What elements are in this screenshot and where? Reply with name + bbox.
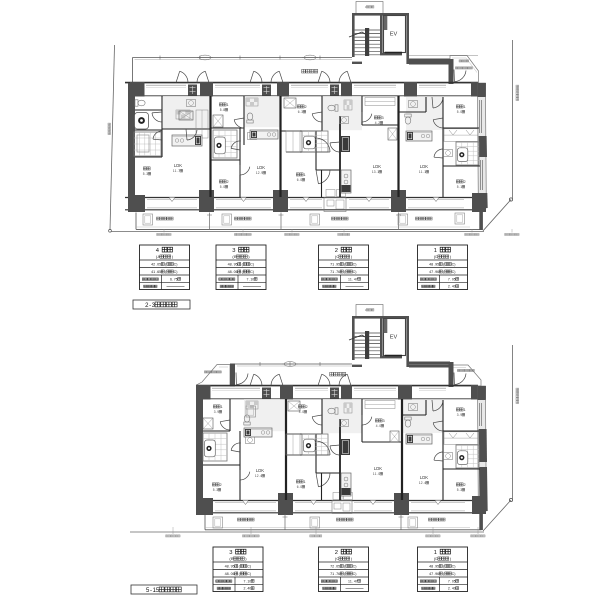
svg-text:): ) (454, 270, 455, 274)
svg-text:6: 6 (338, 572, 340, 576)
svg-text:3: 3 (232, 248, 235, 254)
svg-text:): ) (355, 565, 356, 569)
svg-text:6: 6 (437, 572, 439, 576)
svg-text:): ) (253, 263, 254, 267)
svg-text:LDK: LDK (374, 466, 382, 471)
svg-text:5: 5 (159, 270, 161, 274)
svg-text:6: 6 (233, 572, 235, 576)
svg-text:): ) (250, 565, 251, 569)
svg-text:): ) (355, 263, 356, 267)
svg-text:3: 3 (382, 116, 384, 120)
svg-text:5: 5 (159, 263, 161, 267)
svg-text:5: 5 (437, 565, 439, 569)
svg-text:): ) (355, 270, 356, 274)
svg-text:): ) (355, 572, 356, 576)
svg-text:3: 3 (383, 419, 385, 423)
svg-text:2: 2 (464, 483, 466, 487)
svg-text:2: 2 (335, 550, 338, 556)
svg-text:LDK: LDK (420, 475, 428, 480)
svg-text:0: 0 (249, 587, 251, 591)
svg-text:LDK: LDK (256, 468, 264, 473)
svg-text:): ) (454, 565, 455, 569)
svg-text:7: 7 (356, 579, 358, 583)
svg-text:0: 0 (252, 277, 254, 281)
svg-text:0: 0 (249, 579, 251, 583)
svg-text:5: 5 (454, 579, 456, 583)
svg-text:): ) (250, 572, 251, 576)
svg-text:LDK: LDK (373, 164, 381, 169)
svg-text:1: 1 (434, 248, 437, 254)
svg-text:1: 1 (304, 173, 306, 177)
svg-text:1: 1 (304, 480, 306, 484)
svg-text:1: 1 (464, 408, 466, 412)
svg-text:EV: EV (390, 335, 398, 341)
svg-text:6: 6 (236, 270, 238, 274)
svg-text:2: 2 (464, 180, 466, 184)
svg-text:0: 0 (454, 587, 456, 591)
svg-text:1: 1 (227, 103, 229, 107)
svg-text:2: 2 (227, 180, 229, 184)
svg-text:5: 5 (437, 263, 439, 267)
svg-text:): ) (176, 263, 177, 267)
svg-text:): ) (176, 270, 177, 274)
svg-text:5: 5 (233, 565, 235, 569)
svg-text:LDK: LDK (174, 163, 182, 168)
svg-text:1: 1 (464, 105, 466, 109)
svg-text:5: 5 (338, 263, 340, 267)
svg-text:5: 5 (338, 565, 340, 569)
svg-text:LDK: LDK (257, 165, 265, 170)
svg-text:2: 2 (306, 405, 308, 409)
svg-text:7: 7 (356, 277, 358, 281)
svg-text:): ) (454, 263, 455, 267)
svg-text:): ) (253, 270, 254, 274)
svg-text:2: 2 (305, 105, 307, 109)
svg-text:0: 0 (454, 285, 456, 289)
svg-text:6: 6 (338, 270, 340, 274)
svg-text:): ) (454, 572, 455, 576)
svg-text:5: 5 (454, 277, 456, 281)
svg-text:2: 2 (220, 483, 222, 487)
svg-text:5: 5 (236, 263, 238, 267)
svg-text:6: 6 (437, 270, 439, 274)
svg-text:EV: EV (390, 32, 398, 38)
svg-text:5: 5 (176, 277, 178, 281)
svg-text:3: 3 (229, 550, 232, 556)
svg-text:1: 1 (434, 550, 437, 556)
svg-text:2: 2 (335, 248, 338, 254)
svg-text:1: 1 (221, 405, 223, 409)
svg-text:LDK: LDK (420, 164, 428, 169)
